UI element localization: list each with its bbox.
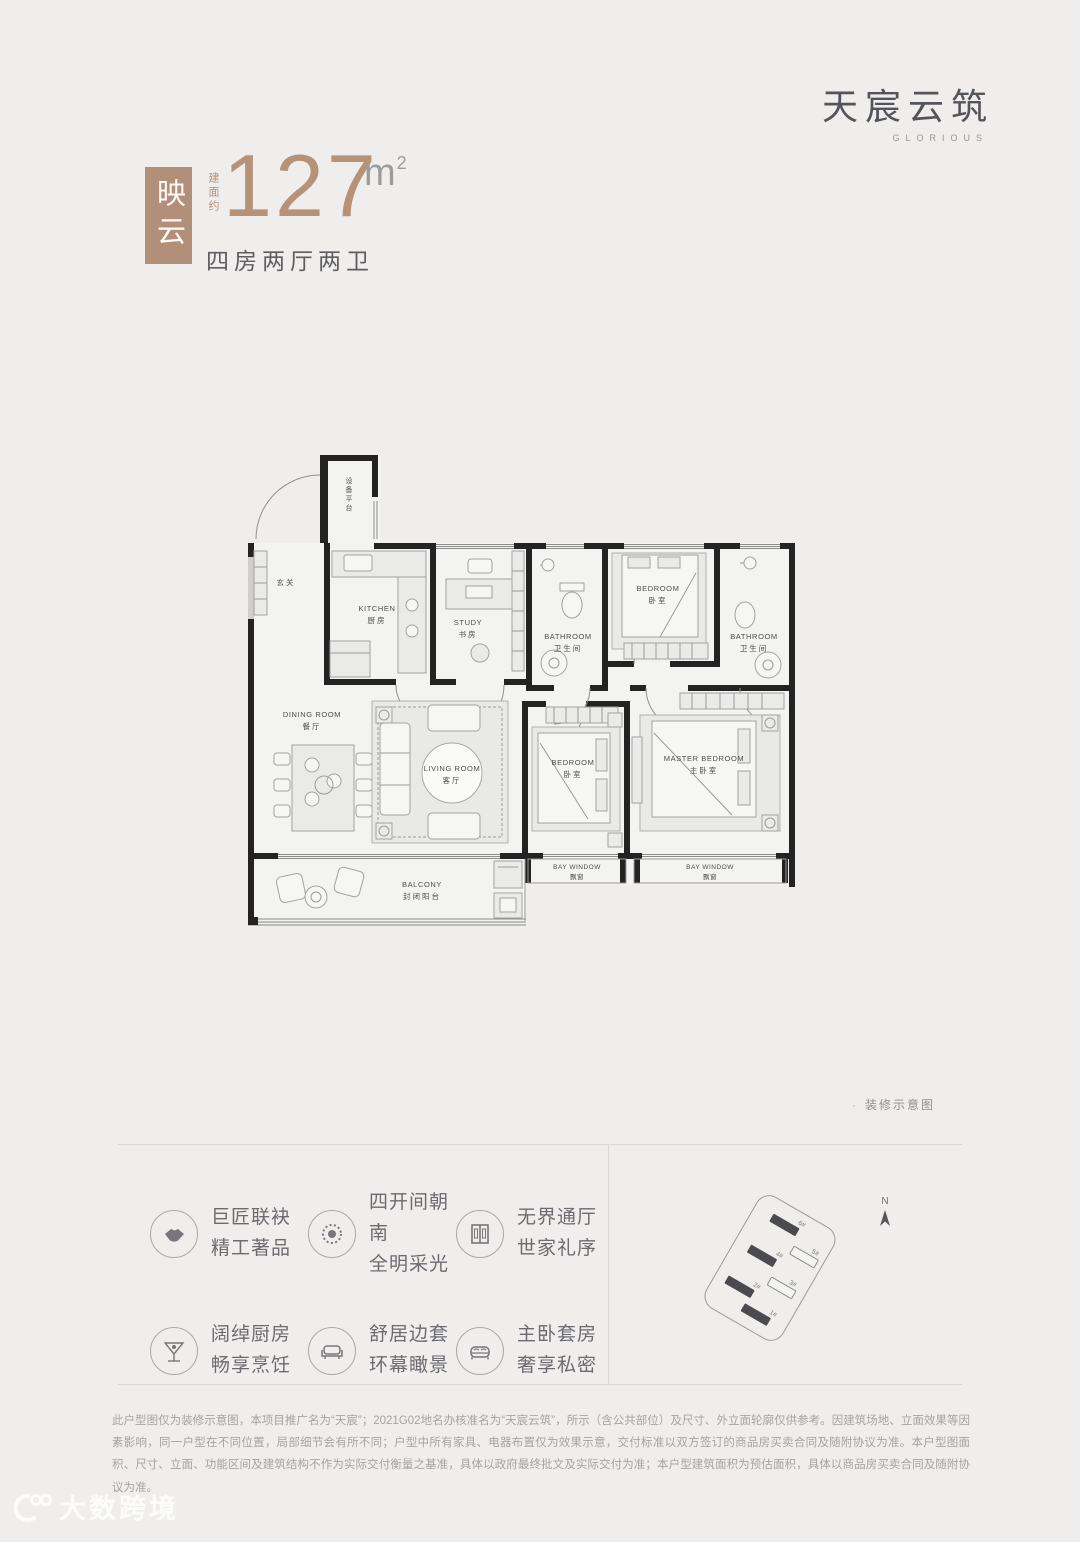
- watermark-logo-icon: [14, 1488, 52, 1526]
- room-label-master-cn: 主卧室: [690, 765, 719, 775]
- room-label-bay1-cn: 飘窗: [570, 872, 584, 881]
- room-label-bay2-cn: 飘窗: [703, 872, 717, 881]
- feature-view: 舒居边套环幕瞰景: [308, 1320, 456, 1382]
- entry-cabinet: [254, 551, 267, 615]
- watermark-text: 大数跨境: [59, 1487, 179, 1526]
- bed-icon: [456, 1327, 504, 1375]
- feature-craft: 巨匠联袂精工著品: [150, 1188, 308, 1280]
- sun-icon: [308, 1210, 356, 1258]
- room-label-balcony-cn: 封闭阳台: [403, 891, 441, 901]
- feature-line: 阔绰厨房: [211, 1320, 291, 1351]
- room-label-shaft: 设备平台: [343, 477, 353, 513]
- area-unit: m2: [364, 152, 406, 195]
- feature-line: 舒居边套: [369, 1320, 449, 1351]
- bedroom-top-furniture: [612, 553, 708, 659]
- unit-name-badge: 映云: [145, 167, 192, 264]
- site-map: 6# 5# 4# 3# 2# 1# N: [672, 1172, 922, 1372]
- room-label-bedtop-cn: 卧室: [649, 595, 668, 605]
- unit-layout: 四房两厅两卫: [206, 242, 374, 276]
- feature-line: 巨匠联袂: [211, 1203, 291, 1234]
- feature-line: 世家礼序: [517, 1234, 597, 1265]
- feature-hall: 无界通厅世家礼序: [456, 1188, 604, 1280]
- room-label-master-en: MASTER BEDROOM: [664, 754, 745, 763]
- room-label-bay2-en: BAY WINDOW: [686, 864, 734, 871]
- building-1: 1#: [741, 1296, 779, 1328]
- room-label-bath1-en: BATHROOM: [544, 632, 592, 641]
- room-label-kitchen-en: KITCHEN: [358, 604, 395, 613]
- site-boundary: 6# 5# 4# 3# 2# 1#: [700, 1191, 840, 1346]
- room-label-bath1-cn: 卫生间: [554, 643, 583, 653]
- feature-line: 奢享私密: [517, 1351, 597, 1382]
- brand-logo: 天宸云筑 GLORIOUS: [822, 78, 994, 143]
- building-5: 5#: [790, 1239, 823, 1268]
- area-value: 127: [223, 142, 379, 230]
- building-2: 2#: [724, 1268, 762, 1300]
- feature-line: 全明采光: [369, 1250, 456, 1281]
- room-label-study-en: STUDY: [454, 618, 482, 627]
- feature-line: 精工著品: [211, 1234, 291, 1265]
- room-label-kitchen-cn: 厨房: [368, 615, 387, 625]
- glass-icon: [150, 1327, 198, 1375]
- feature-daylight: 四开间朝南全明采光: [308, 1188, 456, 1280]
- plan-caption: ·装修示意图: [852, 1096, 935, 1113]
- area-unit-sup: 2: [397, 153, 407, 173]
- room-label-bedmid-cn: 卧室: [564, 769, 583, 779]
- watermark: 大数跨境: [14, 1487, 179, 1526]
- divider-bottom: [118, 1384, 962, 1385]
- feature-kitchen: 阔绰厨房畅享烹饪: [150, 1320, 308, 1382]
- room-label-balcony-en: BALCONY: [402, 880, 442, 889]
- room-label-entry: 玄关: [277, 577, 296, 587]
- compass-arrow-icon: [880, 1210, 890, 1226]
- area-prefix: 建面约: [205, 172, 221, 214]
- room-label-bay1-en: BAY WINDOW: [553, 864, 601, 871]
- brand-logo-cn: 天宸云筑: [822, 78, 994, 130]
- building-3: 3#: [767, 1270, 800, 1299]
- room-label-living-en: LIVING ROOM: [424, 764, 481, 773]
- divider-top: [118, 1144, 962, 1145]
- disclaimer-text: 此户型图仅为装修示意图，本项目推广名为“天宸”；2021G02地名办核准名为“天…: [112, 1410, 970, 1500]
- feature-list: 巨匠联袂精工著品 四开间朝南全明采光 无界通厅世家礼序 阔绰厨房畅享烹饪 舒居边…: [150, 1188, 604, 1382]
- sofa-icon: [308, 1327, 356, 1375]
- handshake-icon: [150, 1210, 198, 1258]
- room-label-bath2-en: BATHROOM: [730, 632, 778, 641]
- feature-line: 环幕瞰景: [369, 1351, 449, 1382]
- feature-line: 无界通厅: [517, 1203, 597, 1234]
- caption-bullet: ·: [852, 1098, 858, 1112]
- room-label-living-cn: 客厅: [443, 775, 462, 785]
- room-label-dining-cn: 餐厅: [303, 722, 322, 731]
- brand-logo-en: GLORIOUS: [822, 133, 994, 143]
- compass-label: N: [881, 1196, 888, 1207]
- room-label-bedtop-en: BEDROOM: [637, 584, 680, 593]
- compass-north: N: [880, 1196, 890, 1226]
- feature-master-suite: 主卧套房奢享私密: [456, 1320, 604, 1382]
- building-4: 4#: [747, 1238, 785, 1270]
- door-icon: [456, 1210, 504, 1258]
- feature-line: 四开间朝南: [369, 1188, 456, 1250]
- poster-page: 天宸云筑 GLORIOUS 映云 建面约 127 m2 四房两厅两卫: [0, 0, 1080, 1542]
- building-6: 6#: [769, 1207, 807, 1239]
- room-label-dining-en: DINING ROOM: [283, 710, 341, 719]
- divider-vertical: [608, 1144, 609, 1384]
- room-label-bedmid-en: BEDROOM: [552, 758, 595, 767]
- feature-line: 主卧套房: [517, 1320, 597, 1351]
- floor-plan: 玄关 KITCHEN 厨房 STUDY 书房 BATHROOM 卫生间 BEDR…: [240, 455, 800, 945]
- feature-line: 畅享烹饪: [211, 1351, 291, 1382]
- room-label-study-cn: 书房: [459, 629, 478, 639]
- room-label-bath2-cn: 卫生间: [740, 643, 769, 653]
